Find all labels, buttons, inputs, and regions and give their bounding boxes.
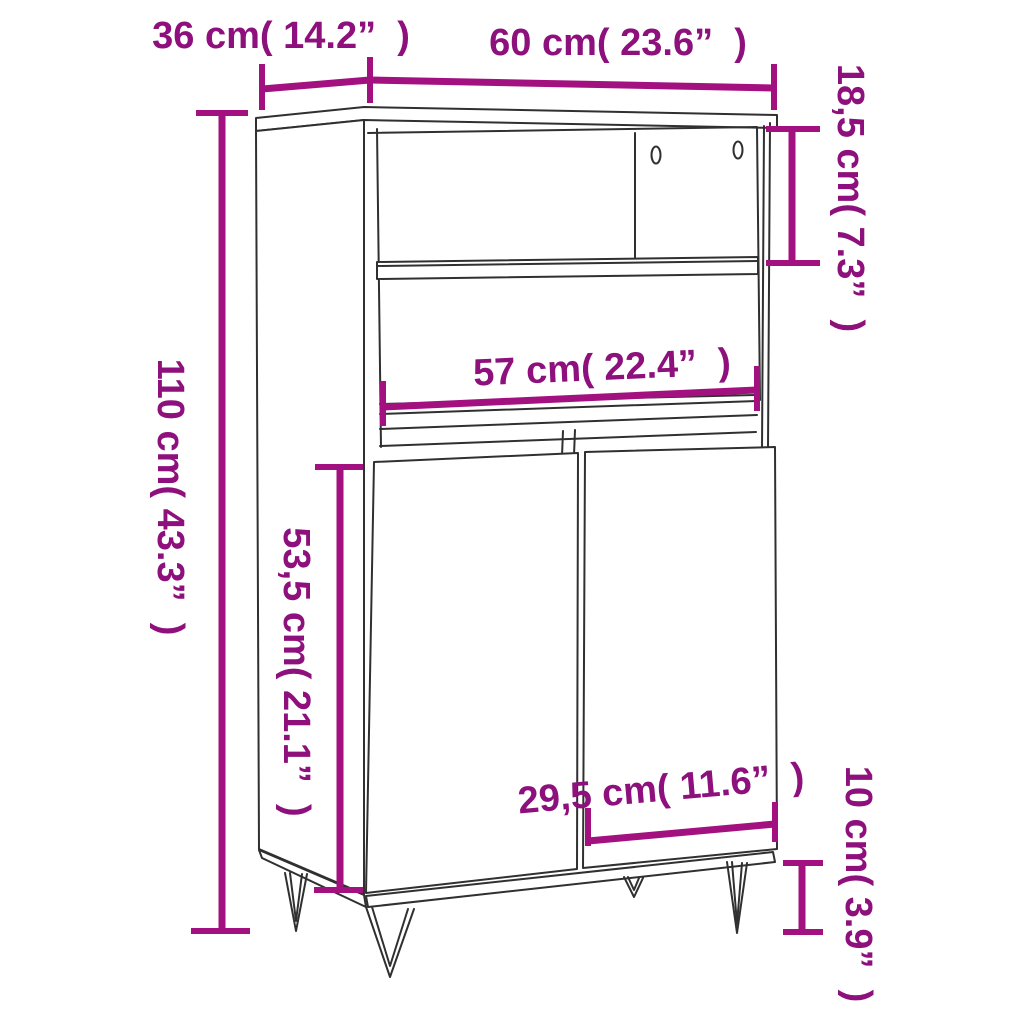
dim-label-total-height: 110 cm( 43.3” ) xyxy=(151,359,189,636)
dim-label-door-height: 53,5 cm( 21.1” ) xyxy=(277,527,315,816)
dim-label-depth: 36 cm( 14.2” ) xyxy=(152,17,410,55)
dim-line-leg-height xyxy=(783,863,823,932)
left-door xyxy=(366,453,578,893)
dim-label-top-section-height: 18,5 cm( 7.3” ) xyxy=(831,64,869,332)
dim-line-top-section-height xyxy=(766,129,820,263)
dim-line-width xyxy=(370,64,774,110)
dimension-diagram: 36 cm( 14.2” ) 60 cm( 23.6” ) 18,5 cm( 7… xyxy=(0,0,1024,1024)
dim-line-depth xyxy=(262,57,370,110)
screw-hole xyxy=(734,142,743,159)
middle-shelf xyxy=(377,257,758,279)
dim-label-width: 60 cm( 23.6” ) xyxy=(489,24,747,62)
dim-line-total-height xyxy=(191,113,250,931)
dim-label-leg-height: 10 cm( 3.9” ) xyxy=(839,766,877,1003)
cabinet-drawing xyxy=(256,107,777,977)
screw-hole xyxy=(652,147,661,164)
